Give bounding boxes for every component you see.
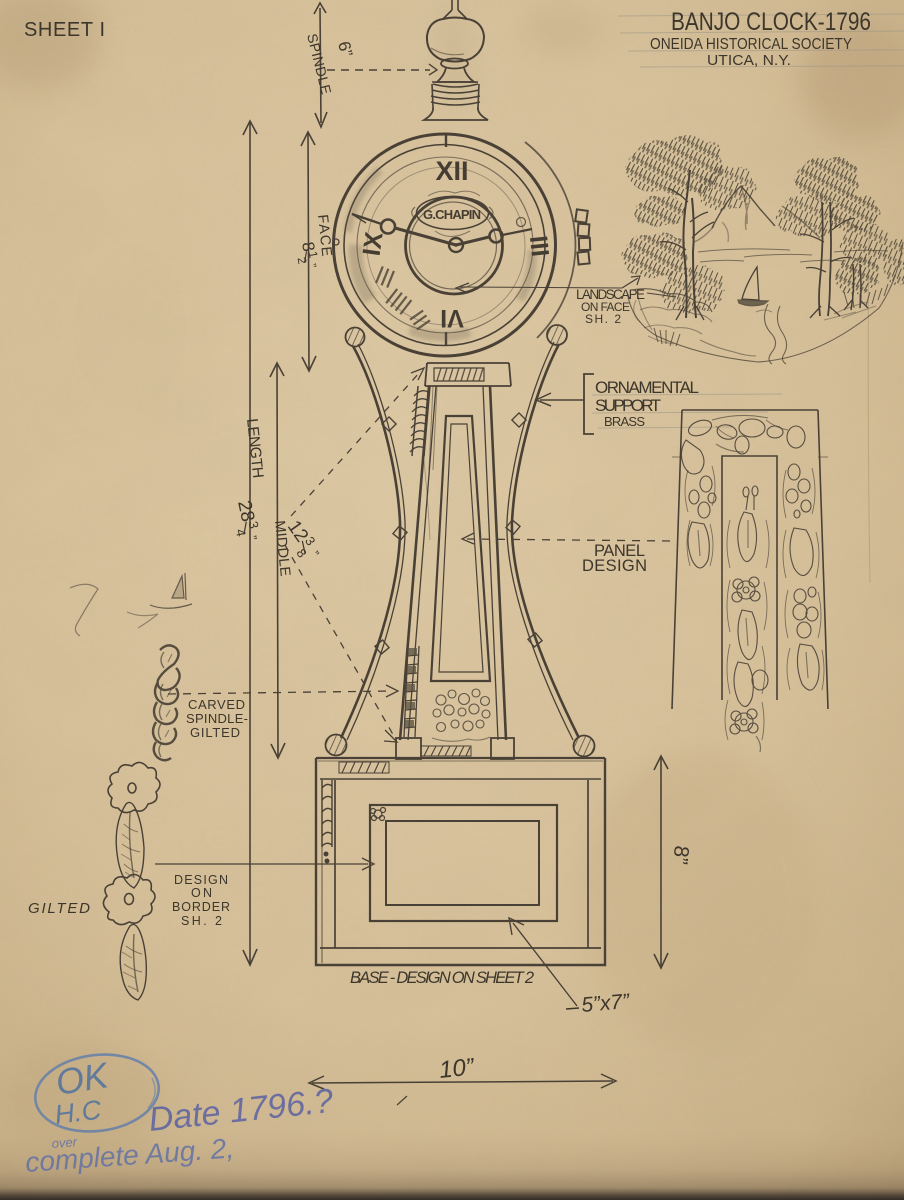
- svg-text:DESIGN: DESIGN: [174, 873, 228, 887]
- svg-text:5”x7”: 5”x7”: [580, 990, 631, 1017]
- svg-text:BANJO CLOCK-1796: BANJO CLOCK-1796: [671, 8, 871, 36]
- svg-text:SPINDLE-: SPINDLE-: [186, 711, 248, 726]
- svg-text:SHEET I: SHEET I: [24, 19, 107, 41]
- svg-text:UTICA, N.Y.: UTICA, N.Y.: [707, 52, 791, 69]
- svg-text:over: over: [51, 1134, 78, 1151]
- svg-text:XII: XII: [435, 156, 468, 186]
- svg-text:H.C: H.C: [53, 1094, 103, 1130]
- svg-text:ONEIDA HISTORICAL SOCIETY: ONEIDA HISTORICAL SOCIETY: [650, 36, 852, 53]
- svg-text:CARVED: CARVED: [188, 697, 245, 712]
- svg-text:G.CHAPIN: G.CHAPIN: [423, 207, 481, 222]
- svg-text:ORNAMENTAL: ORNAMENTAL: [595, 378, 699, 397]
- svg-text:10”: 10”: [438, 1053, 476, 1084]
- svg-text:DESIGN: DESIGN: [582, 557, 647, 575]
- svg-text:SUPPORT: SUPPORT: [595, 396, 661, 415]
- svg-text:VI: VI: [440, 304, 464, 332]
- svg-text:BORDER: BORDER: [172, 900, 230, 914]
- svg-text:28: 28: [233, 499, 258, 524]
- svg-text:IX: IX: [358, 230, 389, 258]
- svg-text:8”: 8”: [668, 844, 693, 865]
- svg-text:BASE - DESIGN ON SHEET 2: BASE - DESIGN ON SHEET 2: [350, 969, 534, 987]
- svg-text:GILTED: GILTED: [28, 900, 90, 917]
- svg-text:GILTED: GILTED: [190, 725, 240, 740]
- svg-text:SH. 2: SH. 2: [585, 312, 621, 326]
- svg-text:III: III: [524, 234, 554, 258]
- svg-text:BRASS: BRASS: [604, 414, 645, 429]
